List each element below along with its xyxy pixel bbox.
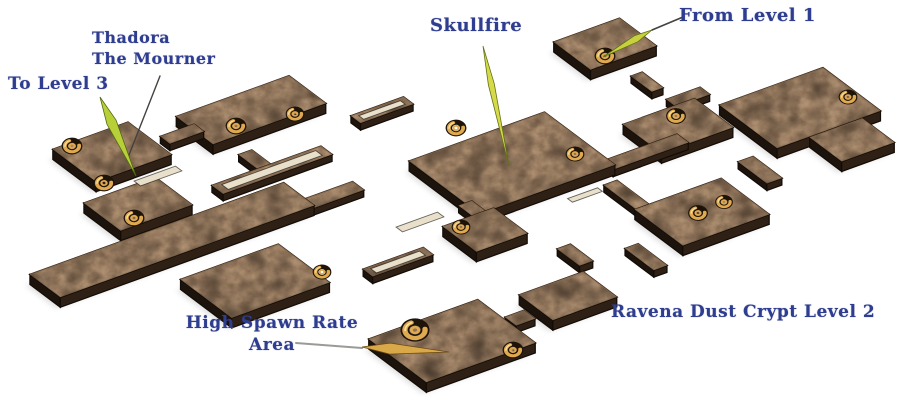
label-thadora-line1: Thadora — [92, 27, 232, 48]
label-thadora-line2: The Mourner — [92, 48, 232, 69]
spiral-center — [453, 126, 459, 131]
spiral-stairs-icon — [315, 266, 330, 278]
label-from-level-1: From Level 1 — [679, 5, 816, 26]
label-to-level-3: To Level 3 — [8, 74, 109, 94]
room-skullfire-hall-cracks — [409, 112, 615, 214]
label-high-spawn-line1: High Spawn Rate — [183, 312, 361, 334]
label-map-title: Ravena Dust Crypt Level 2 — [611, 302, 875, 322]
floor-slot — [396, 212, 444, 232]
spiral-center — [319, 270, 324, 274]
dungeon-map-screen: Thadora The Mourner To Level 3 Skullfire… — [0, 0, 900, 412]
spiral-stairs-icon — [448, 121, 464, 134]
label-thadora-the-mourner: Thadora The Mourner — [92, 27, 232, 69]
label-skullfire: Skullfire — [430, 15, 522, 36]
label-high-spawn-rate-area: High Spawn Rate Area — [183, 312, 361, 356]
label-high-spawn-line2: Area — [183, 334, 361, 356]
